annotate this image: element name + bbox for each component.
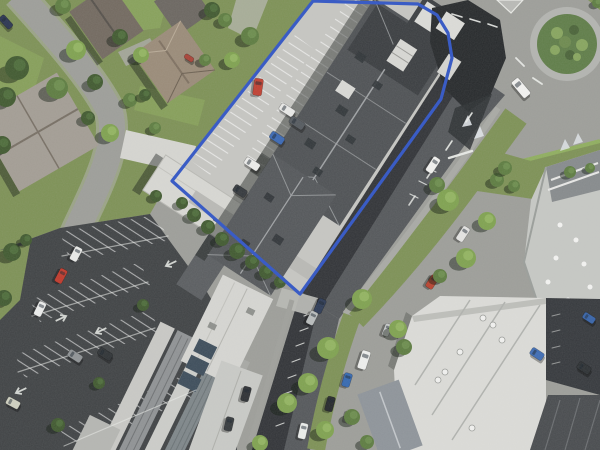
photo-grain-overlay xyxy=(0,0,600,450)
aerial-map[interactable] xyxy=(0,0,600,450)
